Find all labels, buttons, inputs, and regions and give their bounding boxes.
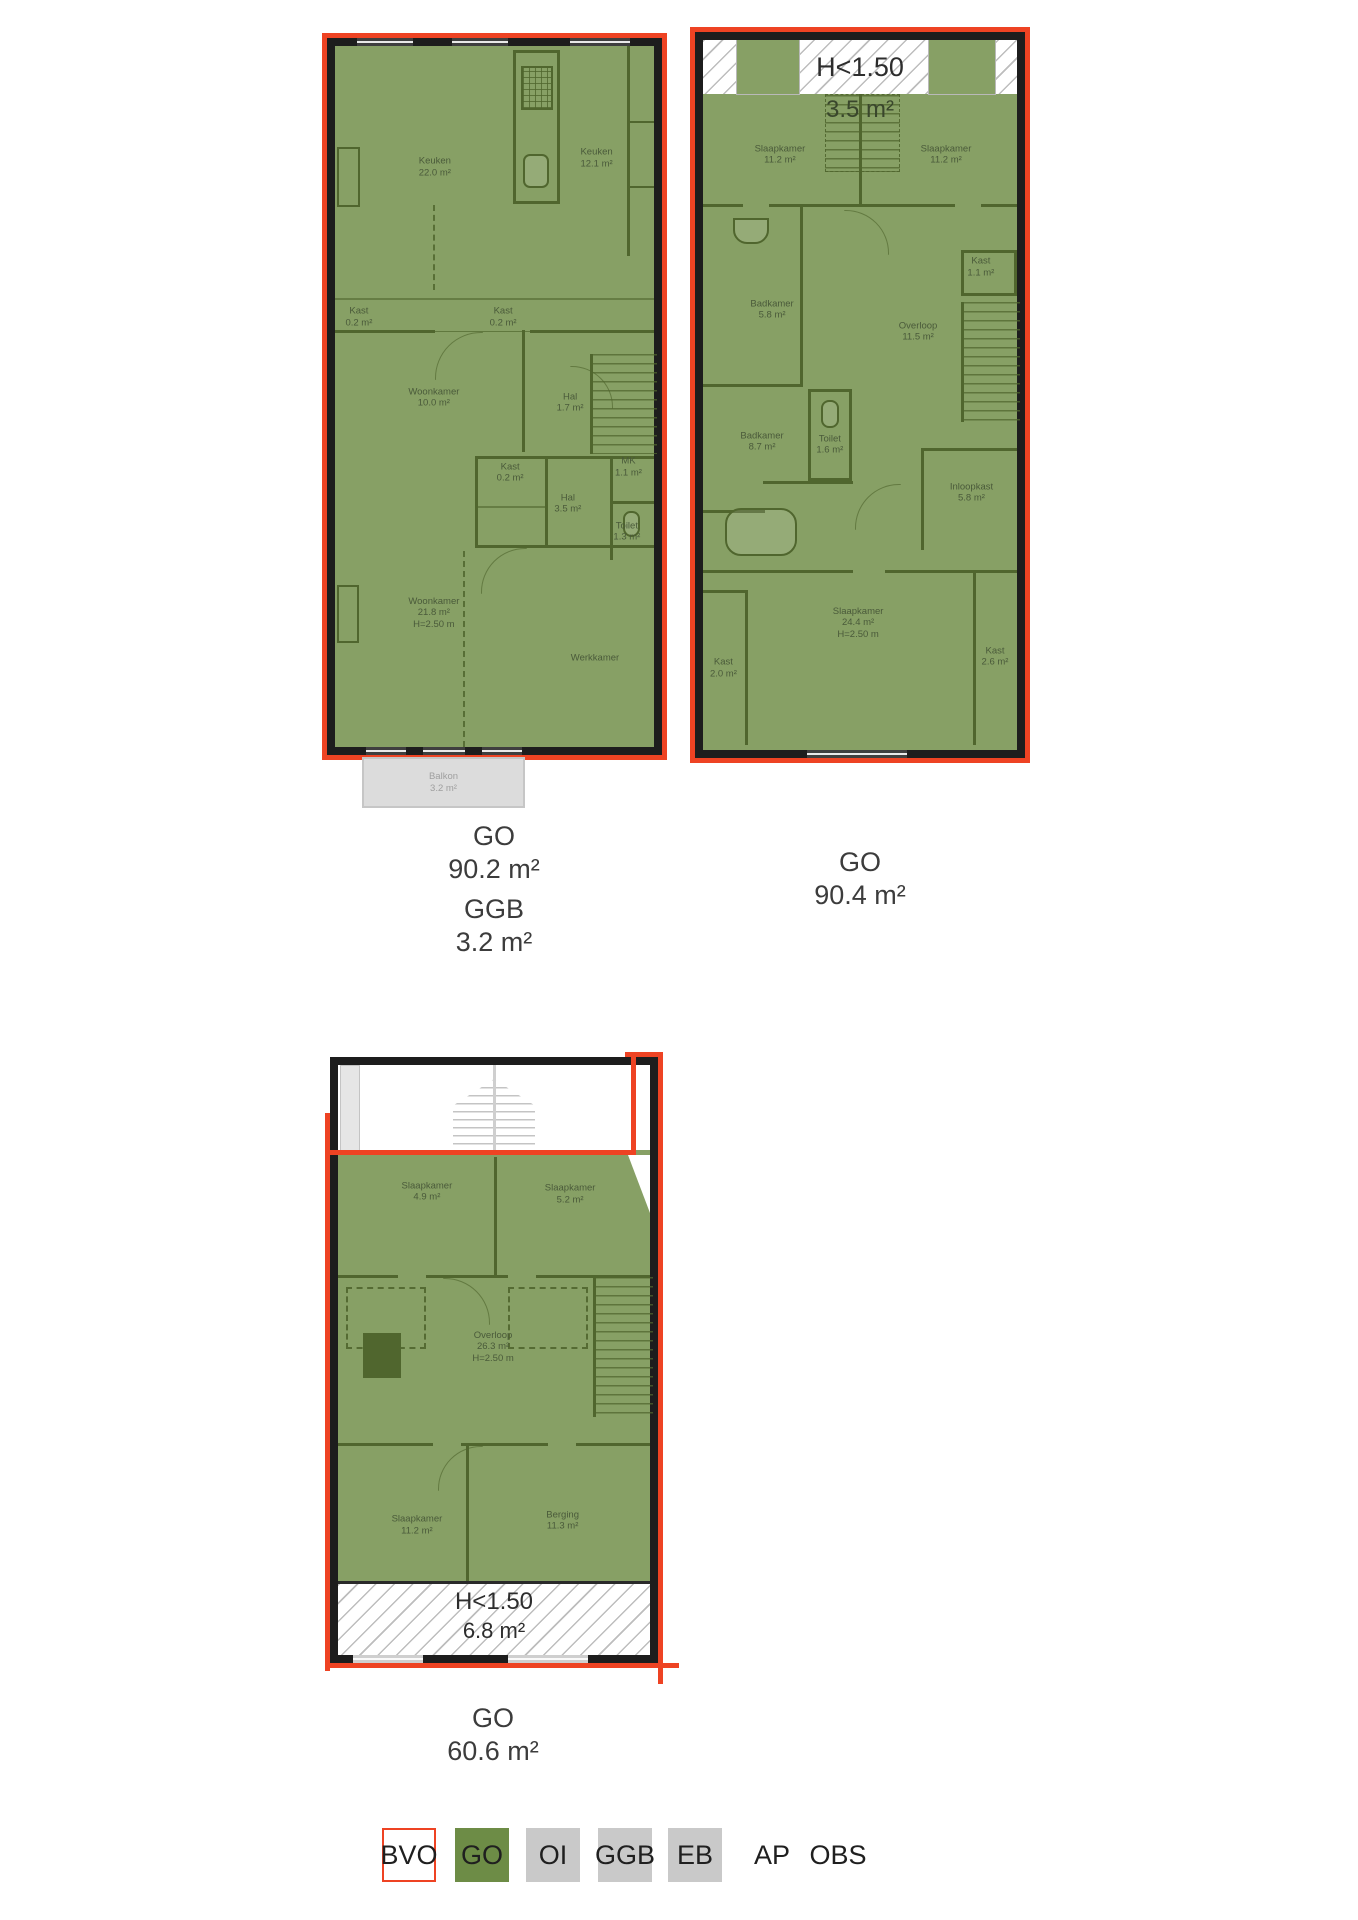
room-label: Hal1.7 m² bbox=[557, 391, 584, 414]
room-label: Overloop26.3 m²H=2.50 m bbox=[472, 1330, 513, 1364]
low-headroom-area: 6.8 m² bbox=[338, 1618, 650, 1644]
room-label: Badkamer5.8 m² bbox=[750, 298, 793, 321]
wall bbox=[627, 186, 654, 188]
totals-floor-2: GO 90.4 m² bbox=[814, 846, 906, 912]
wall bbox=[475, 506, 545, 508]
room-label: Woonkamer21.8 m²H=2.50 m bbox=[408, 596, 459, 630]
room-label: Kast0.2 m² bbox=[345, 306, 372, 329]
wall bbox=[763, 481, 853, 484]
door-arc bbox=[438, 1446, 524, 1532]
window bbox=[353, 1655, 423, 1663]
room-label: Kast0.2 m² bbox=[497, 462, 524, 485]
wall bbox=[745, 590, 748, 745]
room-label: Woonkamer10.0 m² bbox=[408, 387, 459, 410]
floor-plan-1-walls: Keuken22.0 m²Keuken12.1 m²Kast0.2 m²Kast… bbox=[327, 38, 662, 755]
legend-label: AP bbox=[754, 1840, 790, 1871]
room-label: Werkkamer bbox=[571, 652, 619, 663]
wall bbox=[627, 121, 654, 123]
room-label: Badkamer8.7 m² bbox=[740, 430, 783, 453]
wall bbox=[338, 1443, 650, 1446]
room-label: Toilet1.3 m² bbox=[613, 520, 640, 543]
legend-label: EB bbox=[677, 1840, 713, 1871]
bvo-outline bbox=[631, 1057, 636, 1150]
window bbox=[452, 38, 508, 46]
bvo-outline bbox=[658, 1052, 663, 1684]
room-label: Kast2.6 m² bbox=[982, 646, 1009, 669]
wall bbox=[435, 331, 530, 332]
wall bbox=[475, 545, 654, 548]
door-opening bbox=[548, 1443, 576, 1446]
wall bbox=[703, 384, 803, 387]
ggb-label: GGB bbox=[448, 893, 540, 926]
door-opening bbox=[743, 204, 769, 207]
window bbox=[423, 747, 465, 755]
room-label: Kast1.1 m² bbox=[967, 256, 994, 279]
low-headroom-hatch: H<1.50 6.8 m² bbox=[338, 1581, 650, 1655]
bathtub-icon bbox=[725, 508, 797, 556]
staircase bbox=[593, 1277, 653, 1417]
door-arc bbox=[481, 548, 569, 636]
room-label: Slaapkamer5.2 m² bbox=[545, 1183, 596, 1206]
room-label: Kast2.0 m² bbox=[710, 657, 737, 680]
window bbox=[508, 1655, 588, 1663]
legend-label: GO bbox=[461, 1840, 503, 1871]
bvo-outline bbox=[330, 1150, 636, 1155]
window bbox=[570, 38, 630, 46]
wall bbox=[610, 501, 654, 504]
wall bbox=[335, 330, 435, 333]
go-label: GO bbox=[447, 1702, 539, 1735]
legend-item-eb: EB bbox=[668, 1828, 722, 1882]
wall bbox=[522, 330, 525, 452]
legend-item-obs: OBS bbox=[811, 1828, 865, 1882]
window-strip bbox=[340, 1065, 360, 1152]
wall bbox=[494, 1157, 497, 1275]
room-label: Slaapkamer24.4 m²H=2.50 m bbox=[833, 606, 884, 640]
room-label: Berging11.3 m² bbox=[546, 1510, 579, 1533]
roof-slope bbox=[628, 1155, 650, 1213]
floor-plan-2: H<1.50 3.5 m² bbox=[690, 27, 1030, 763]
floor-plan-1: Keuken22.0 m²Keuken12.1 m²Kast0.2 m²Kast… bbox=[322, 33, 667, 760]
go-value: 90.4 m² bbox=[814, 879, 906, 912]
floorplan-page: { "colors": { "bvo_red": "#ee4323", "go_… bbox=[0, 0, 1358, 1920]
legend-label: OI bbox=[539, 1840, 568, 1871]
sink-icon bbox=[523, 154, 549, 188]
low-headroom-label: H<1.50 bbox=[703, 40, 1017, 94]
room-label: Overloop11.5 m² bbox=[899, 320, 938, 343]
door-opening bbox=[433, 1443, 461, 1446]
window bbox=[366, 747, 406, 755]
legend-item-go: GO bbox=[455, 1828, 509, 1882]
legend-item-oi: OI bbox=[526, 1828, 580, 1882]
room-label: Slaapkamer4.9 m² bbox=[402, 1180, 453, 1203]
totals-floor-3: GO 60.6 m² bbox=[447, 1702, 539, 1768]
go-label: GO bbox=[814, 846, 906, 879]
go-value: 90.2 m² bbox=[448, 853, 540, 886]
door-opening bbox=[508, 1275, 536, 1278]
wall bbox=[921, 448, 924, 550]
floor-plan-2-walls: H<1.50 3.5 m² bbox=[695, 32, 1025, 758]
balcony-area: 3.2 m² bbox=[429, 783, 458, 795]
roof-window bbox=[508, 1287, 588, 1349]
door-opening bbox=[398, 1275, 426, 1278]
wall bbox=[973, 570, 976, 745]
room-label: Inloopkast5.8 m² bbox=[950, 482, 993, 505]
dashed-divider bbox=[433, 205, 435, 290]
room-label: MK1.1 m² bbox=[615, 456, 642, 479]
bvo-outline bbox=[325, 1113, 330, 1671]
room-label: Slaapkamer11.2 m² bbox=[755, 144, 806, 167]
door-opening bbox=[955, 204, 981, 207]
stove-icon bbox=[521, 66, 553, 110]
wall bbox=[475, 456, 478, 548]
balcony: Balkon 3.2 m² bbox=[362, 757, 525, 808]
room-label: Keuken12.1 m² bbox=[580, 147, 612, 170]
low-headroom-area: 3.5 m² bbox=[703, 96, 1017, 124]
room-label: Hal3.5 m² bbox=[554, 492, 581, 515]
room-label: Slaapkamer11.2 m² bbox=[392, 1514, 443, 1537]
room-label: Keuken22.0 m² bbox=[419, 156, 451, 179]
low-headroom-label: H<1.50 bbox=[338, 1588, 650, 1616]
window bbox=[482, 747, 522, 755]
staircase bbox=[961, 302, 1020, 422]
window bbox=[357, 38, 413, 46]
go-label: GO bbox=[448, 820, 540, 853]
wall bbox=[545, 456, 548, 548]
dashed-divider bbox=[463, 551, 465, 747]
legend-label: OBS bbox=[809, 1840, 866, 1871]
window-sill bbox=[337, 147, 360, 207]
room-label: Slaapkamer11.2 m² bbox=[921, 144, 972, 167]
legend-item-ggb: GGB bbox=[598, 1828, 652, 1882]
bvo-outline bbox=[325, 1663, 679, 1668]
legend-item-bvo: BVO bbox=[382, 1828, 436, 1882]
legend-item-ap: AP bbox=[745, 1828, 799, 1882]
room-label: Kast0.2 m² bbox=[490, 306, 517, 329]
toilet-icon bbox=[821, 400, 839, 428]
door-arc bbox=[855, 484, 943, 572]
door-arc bbox=[803, 210, 889, 296]
floor-plan-3: H<1.50 6.8 m² Slaapkamer4.9 m²Slaapkamer… bbox=[330, 1057, 658, 1663]
wall bbox=[703, 590, 745, 593]
totals-floor-1: GO 90.2 m² GGB 3.2 m² bbox=[448, 820, 540, 959]
stair-divider bbox=[493, 1065, 496, 1150]
go-value: 60.6 m² bbox=[447, 1735, 539, 1768]
door-arc bbox=[435, 332, 527, 424]
wall bbox=[627, 46, 630, 256]
chimney bbox=[363, 1333, 401, 1378]
window-sill bbox=[337, 585, 359, 643]
wall bbox=[800, 204, 803, 384]
legend-label: GGB bbox=[595, 1840, 655, 1871]
balcony-name: Balkon bbox=[429, 771, 458, 783]
wall bbox=[335, 298, 654, 300]
sink-icon bbox=[733, 218, 769, 244]
ggb-value: 3.2 m² bbox=[448, 926, 540, 959]
door-opening bbox=[853, 570, 885, 573]
window bbox=[807, 750, 907, 758]
legend-label: BVO bbox=[380, 1840, 437, 1871]
wall bbox=[921, 448, 1017, 451]
room-label: Toilet1.6 m² bbox=[816, 433, 843, 456]
wall bbox=[530, 330, 654, 333]
